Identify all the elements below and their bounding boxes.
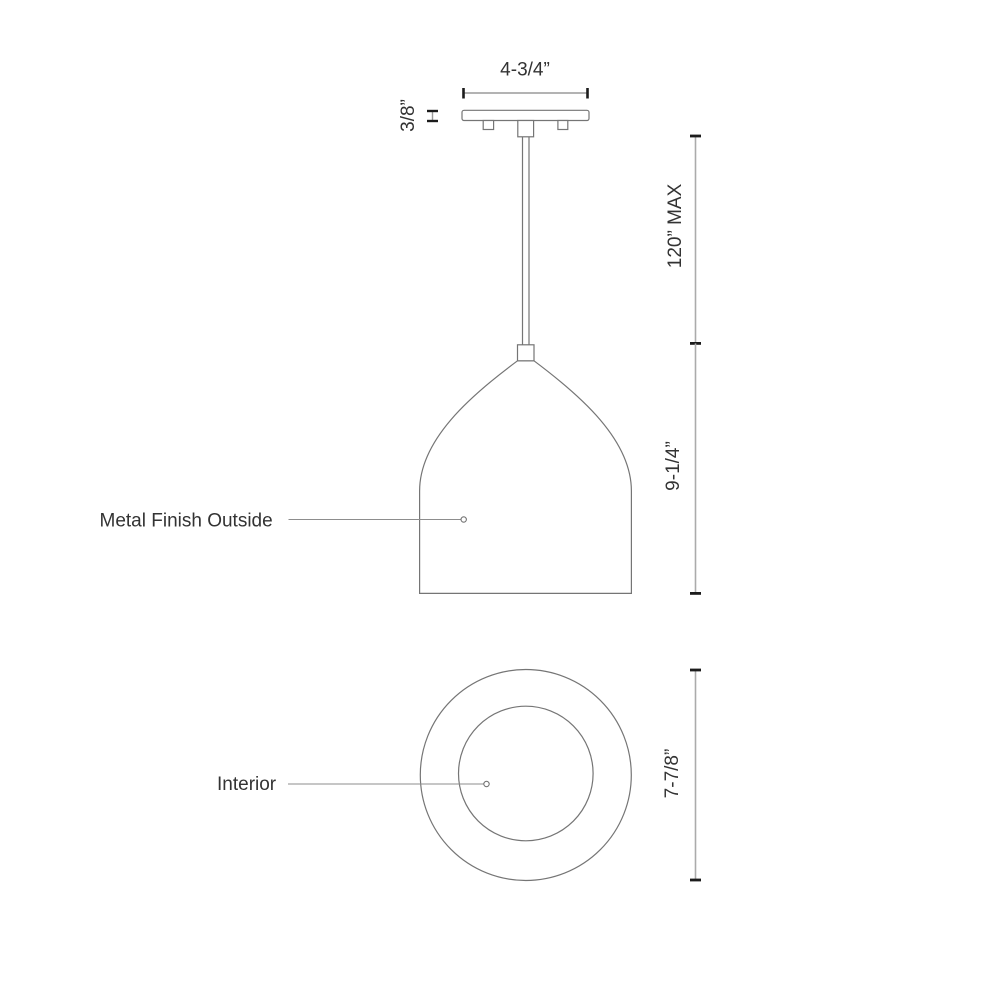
svg-text:120” MAX: 120” MAX: [665, 183, 686, 268]
svg-text:Interior: Interior: [217, 774, 277, 795]
svg-text:3/8”: 3/8”: [398, 99, 419, 132]
svg-text:9-1/4”: 9-1/4”: [663, 441, 684, 491]
svg-text:4-3/4”: 4-3/4”: [500, 60, 550, 81]
svg-text:Metal Finish Outside: Metal Finish Outside: [100, 511, 273, 532]
svg-text:7-7/8”: 7-7/8”: [662, 749, 683, 799]
